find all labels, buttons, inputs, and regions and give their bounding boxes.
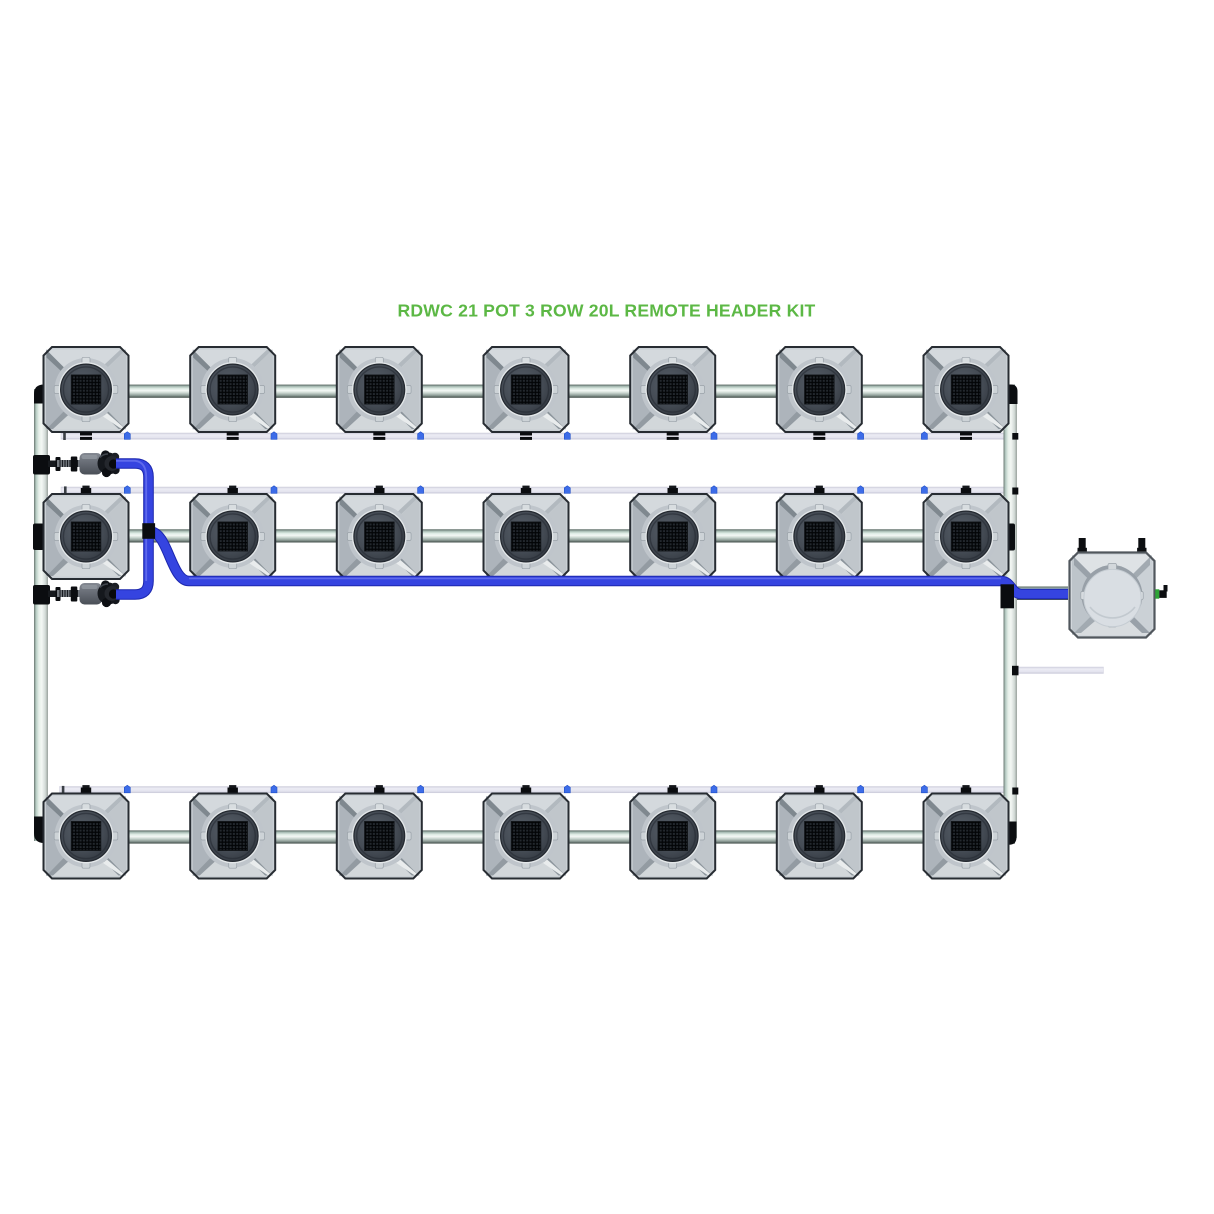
svg-text:RDWC 21 POT 3 ROW 20L REMOTE H: RDWC 21 POT 3 ROW 20L REMOTE HEADER KIT bbox=[397, 301, 815, 321]
